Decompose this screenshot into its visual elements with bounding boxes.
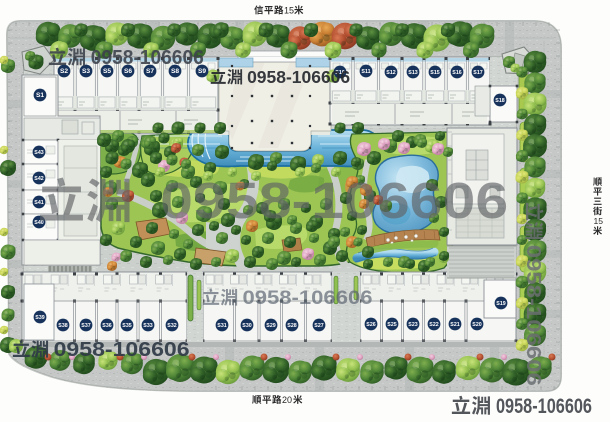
svg-text:S1: S1 [36, 92, 44, 99]
svg-text:S16: S16 [452, 70, 461, 76]
svg-text:15: 15 [594, 216, 604, 226]
svg-text:0958-106606: 0958-106606 [522, 245, 545, 386]
svg-text:S11: S11 [361, 69, 370, 75]
svg-text:S17: S17 [473, 70, 482, 76]
svg-text:S43: S43 [34, 150, 43, 156]
svg-text:S13: S13 [408, 70, 417, 76]
svg-text:S39: S39 [35, 315, 44, 321]
svg-text:S6: S6 [124, 68, 132, 75]
svg-text:0958-106606: 0958-106606 [243, 287, 373, 309]
svg-text:S33: S33 [143, 323, 152, 329]
svg-text:20: 20 [282, 395, 292, 405]
svg-text:S37: S37 [81, 323, 90, 329]
svg-text:S27: S27 [314, 323, 323, 329]
svg-text:S7: S7 [146, 68, 154, 75]
svg-text:S20: S20 [472, 322, 481, 328]
svg-text:S22: S22 [429, 322, 438, 328]
svg-text:0958-106606: 0958-106606 [247, 67, 350, 87]
svg-text:S32: S32 [167, 323, 176, 329]
svg-text:0958-106606: 0958-106606 [54, 339, 190, 361]
svg-text:S23: S23 [408, 322, 417, 328]
svg-text:S12: S12 [386, 70, 395, 76]
svg-text:0958-106606: 0958-106606 [496, 393, 592, 418]
svg-text:S8: S8 [171, 68, 179, 75]
svg-text:S38: S38 [58, 323, 67, 329]
svg-text:S28: S28 [287, 323, 296, 329]
svg-text:S26: S26 [366, 322, 375, 328]
svg-text:S25: S25 [387, 322, 396, 328]
svg-text:0958-106606: 0958-106606 [91, 46, 204, 69]
svg-text:S36: S36 [102, 323, 111, 329]
svg-text:15: 15 [284, 6, 294, 16]
svg-text:S35: S35 [122, 323, 131, 329]
svg-text:S3: S3 [82, 68, 90, 75]
svg-text:S19: S19 [496, 301, 505, 307]
svg-text:S5: S5 [103, 68, 111, 75]
svg-text:S42: S42 [34, 176, 43, 182]
svg-text:S21: S21 [450, 322, 459, 328]
svg-text:S15: S15 [430, 70, 439, 76]
svg-text:0958-106606: 0958-106606 [160, 172, 508, 229]
svg-text:S40: S40 [34, 220, 43, 226]
svg-text:S2: S2 [60, 68, 68, 75]
svg-text:S18: S18 [495, 98, 504, 104]
svg-text:S41: S41 [34, 200, 43, 206]
svg-text:S30: S30 [242, 323, 251, 329]
svg-text:S9: S9 [198, 68, 206, 75]
svg-text:S31: S31 [217, 323, 226, 329]
svg-text:S29: S29 [266, 323, 275, 329]
